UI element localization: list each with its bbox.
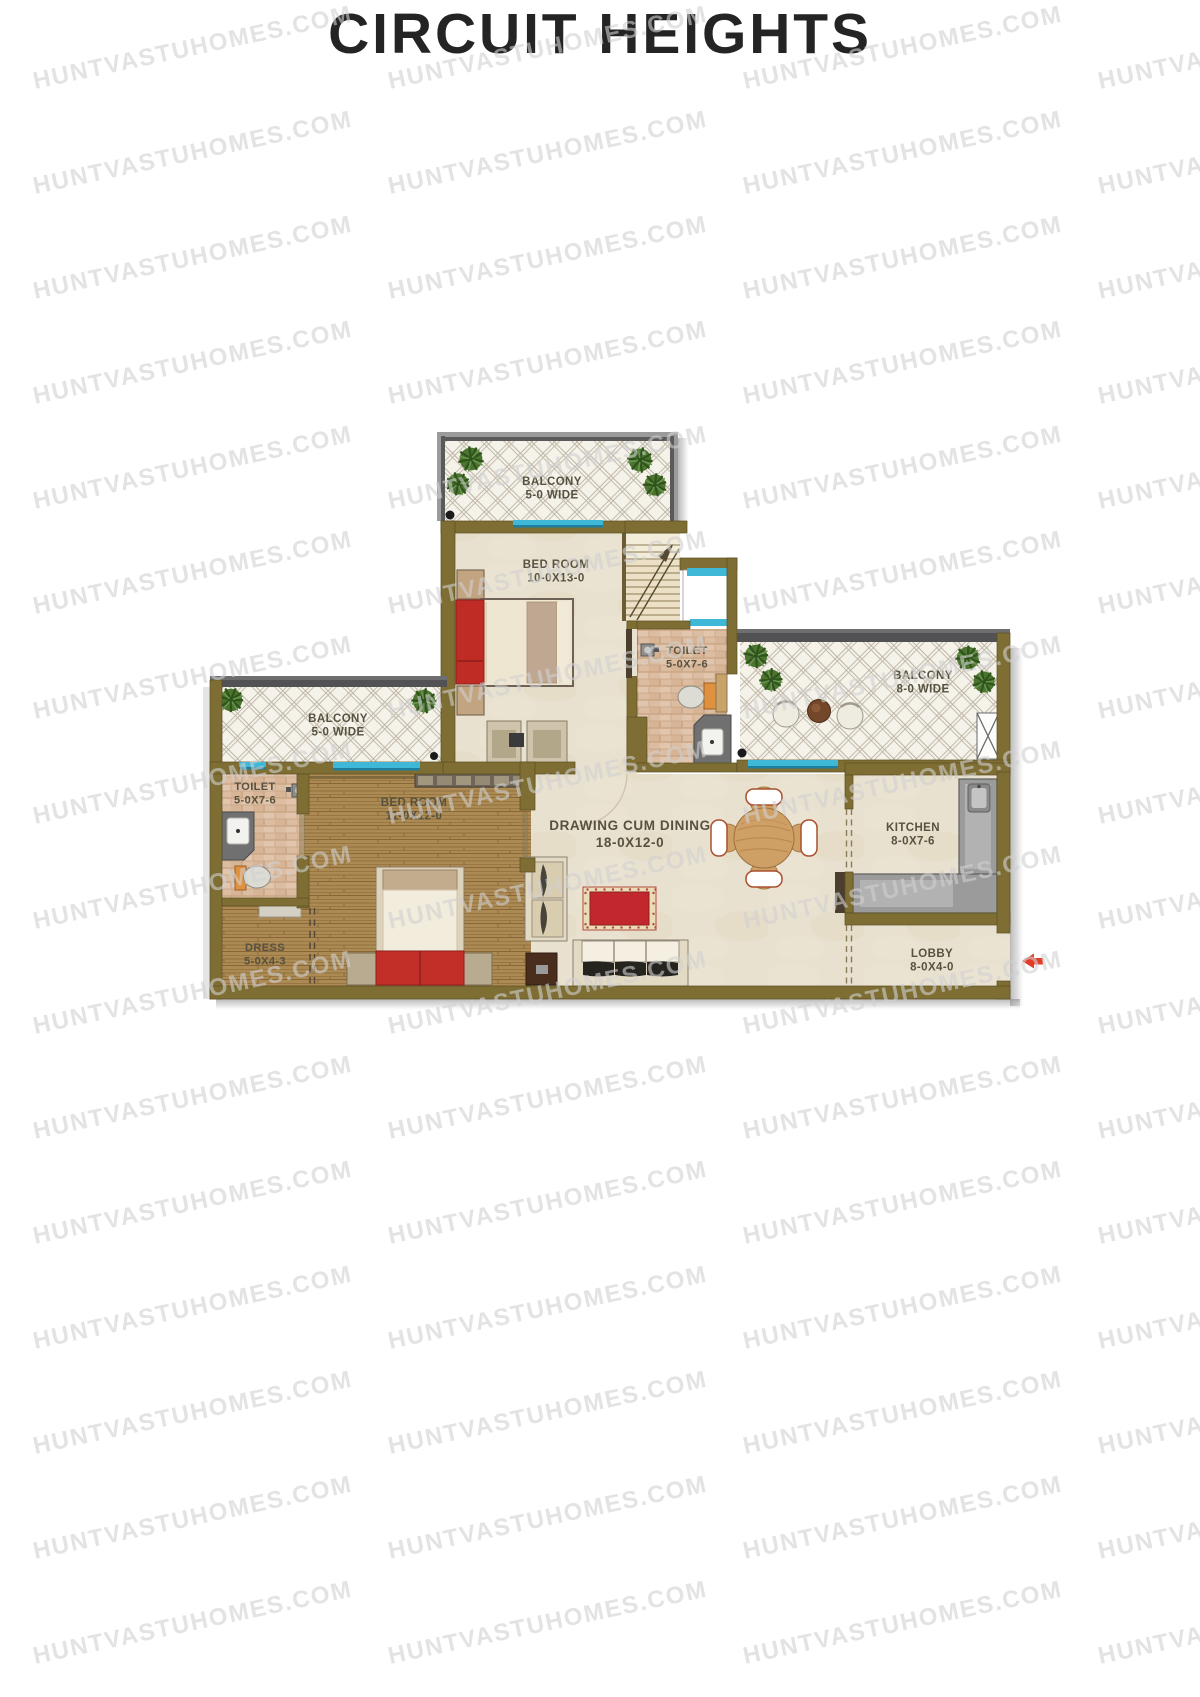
svg-text:HUNTVASTUHOMES.COM: HUNTVASTUHOMES.COM (386, 211, 710, 305)
svg-text:HUNTVASTUHOMES.COM: HUNTVASTUHOMES.COM (31, 211, 355, 305)
svg-text:HUNTVASTUHOMES.COM: HUNTVASTUHOMES.COM (741, 1366, 1065, 1460)
svg-text:HUNTVASTUHOMES.COM: HUNTVASTUHOMES.COM (1096, 106, 1200, 200)
svg-text:5-0 WIDE: 5-0 WIDE (525, 490, 578, 502)
svg-text:HUNTVASTUHOMES.COM: HUNTVASTUHOMES.COM (386, 106, 710, 200)
svg-text:KITCHEN: KITCHEN (886, 822, 940, 834)
svg-text:HUNTVASTUHOMES.COM: HUNTVASTUHOMES.COM (386, 1051, 710, 1145)
svg-text:HUNTVASTUHOMES.COM: HUNTVASTUHOMES.COM (741, 1576, 1065, 1670)
svg-text:18-0X12-0: 18-0X12-0 (596, 835, 664, 850)
svg-text:HUNTVASTUHOMES.COM: HUNTVASTUHOMES.COM (1096, 1261, 1200, 1355)
svg-text:HUNTVASTUHOMES.COM: HUNTVASTUHOMES.COM (1096, 946, 1200, 1040)
svg-text:HUNTVASTUHOMES.COM: HUNTVASTUHOMES.COM (31, 1471, 355, 1565)
svg-text:HUNTVASTUHOMES.COM: HUNTVASTUHOMES.COM (1096, 1576, 1200, 1670)
svg-text:HUNTVASTUHOMES.COM: HUNTVASTUHOMES.COM (741, 1471, 1065, 1565)
svg-text:LOBBY: LOBBY (911, 948, 953, 960)
svg-text:HUNTVASTUHOMES.COM: HUNTVASTUHOMES.COM (1096, 211, 1200, 305)
svg-text:DRESS: DRESS (245, 942, 285, 954)
svg-text:HUNTVASTUHOMES.COM: HUNTVASTUHOMES.COM (741, 1261, 1065, 1355)
svg-text:HUNTVASTUHOMES.COM: HUNTVASTUHOMES.COM (31, 526, 355, 620)
svg-text:HUNTVASTUHOMES.COM: HUNTVASTUHOMES.COM (386, 316, 710, 410)
svg-text:HUNTVASTUHOMES.COM: HUNTVASTUHOMES.COM (1096, 1366, 1200, 1460)
svg-text:HUNTVASTUHOMES.COM: HUNTVASTUHOMES.COM (386, 1576, 710, 1670)
svg-text:HUNTVASTUHOMES.COM: HUNTVASTUHOMES.COM (386, 1261, 710, 1355)
svg-text:HUNTVASTUHOMES.COM: HUNTVASTUHOMES.COM (741, 526, 1065, 620)
svg-text:HUNTVASTUHOMES.COM: HUNTVASTUHOMES.COM (31, 1, 355, 95)
svg-text:HUNTVASTUHOMES.COM: HUNTVASTUHOMES.COM (31, 106, 355, 200)
svg-text:HUNTVASTUHOMES.COM: HUNTVASTUHOMES.COM (31, 1366, 355, 1460)
svg-text:HUNTVASTUHOMES.COM: HUNTVASTUHOMES.COM (386, 1471, 710, 1565)
svg-text:HUNTVASTUHOMES.COM: HUNTVASTUHOMES.COM (1096, 1471, 1200, 1565)
svg-text:HUNTVASTUHOMES.COM: HUNTVASTUHOMES.COM (741, 421, 1065, 515)
svg-text:DRAWING CUM DINING: DRAWING CUM DINING (549, 818, 711, 833)
svg-text:HUNTVASTUHOMES.COM: HUNTVASTUHOMES.COM (1096, 1156, 1200, 1250)
svg-text:BALCONY: BALCONY (308, 713, 368, 725)
svg-text:HUNTVASTUHOMES.COM: HUNTVASTUHOMES.COM (31, 1261, 355, 1355)
svg-text:HUNTVASTUHOMES.COM: HUNTVASTUHOMES.COM (31, 421, 355, 515)
svg-text:HUNTVASTUHOMES.COM: HUNTVASTUHOMES.COM (1096, 526, 1200, 620)
svg-text:5-0X7-6: 5-0X7-6 (234, 795, 276, 807)
svg-text:HUNTVASTUHOMES.COM: HUNTVASTUHOMES.COM (1096, 421, 1200, 515)
svg-text:HUNTVASTUHOMES.COM: HUNTVASTUHOMES.COM (31, 316, 355, 410)
svg-text:HUNTVASTUHOMES.COM: HUNTVASTUHOMES.COM (31, 1051, 355, 1145)
svg-text:HUNTVASTUHOMES.COM: HUNTVASTUHOMES.COM (31, 1576, 355, 1670)
svg-text:HUNTVASTUHOMES.COM: HUNTVASTUHOMES.COM (386, 1366, 710, 1460)
svg-text:5-0 WIDE: 5-0 WIDE (311, 727, 364, 739)
svg-text:HUNTVASTUHOMES.COM: HUNTVASTUHOMES.COM (1096, 736, 1200, 830)
svg-text:HUNTVASTUHOMES.COM: HUNTVASTUHOMES.COM (741, 211, 1065, 305)
svg-text:HUNTVASTUHOMES.COM: HUNTVASTUHOMES.COM (1096, 631, 1200, 725)
svg-text:HUNTVASTUHOMES.COM: HUNTVASTUHOMES.COM (1096, 316, 1200, 410)
svg-text:HUNTVASTUHOMES.COM: HUNTVASTUHOMES.COM (1096, 841, 1200, 935)
svg-text:8-0X7-6: 8-0X7-6 (891, 836, 935, 848)
svg-text:HUNTVASTUHOMES.COM: HUNTVASTUHOMES.COM (741, 316, 1065, 410)
svg-text:HUNTVASTUHOMES.COM: HUNTVASTUHOMES.COM (1096, 1051, 1200, 1145)
svg-text:HUNTVASTUHOMES.COM: HUNTVASTUHOMES.COM (31, 1156, 355, 1250)
svg-text:HUNTVASTUHOMES.COM: HUNTVASTUHOMES.COM (741, 106, 1065, 200)
svg-text:HUNTVASTUHOMES.COM: HUNTVASTUHOMES.COM (741, 1156, 1065, 1250)
svg-text:HUNTVASTUHOMES.COM: HUNTVASTUHOMES.COM (386, 1156, 710, 1250)
svg-text:HUNTVASTUHOMES.COM: HUNTVASTUHOMES.COM (1096, 1, 1200, 95)
svg-text:HUNTVASTUHOMES.COM: HUNTVASTUHOMES.COM (741, 1051, 1065, 1145)
